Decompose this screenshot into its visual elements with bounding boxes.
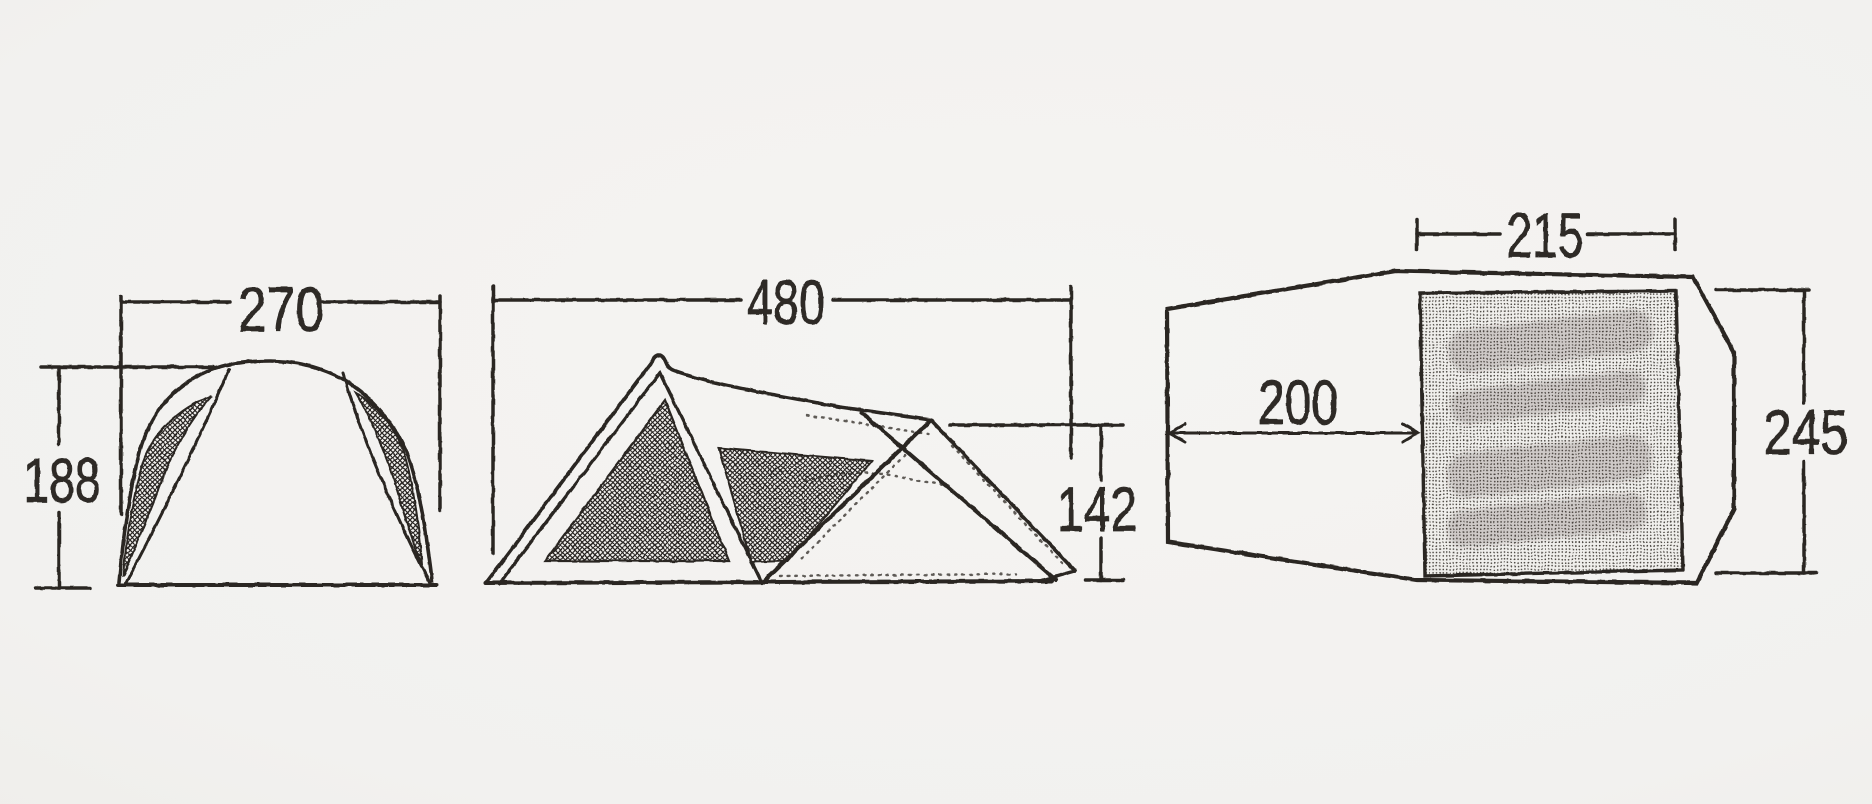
svg-text:200: 200 [1258,368,1338,438]
svg-text:142: 142 [1057,475,1137,545]
svg-text:188: 188 [24,446,101,516]
svg-text:215: 215 [1507,201,1584,271]
svg-text:270: 270 [238,275,324,345]
svg-text:245: 245 [1764,398,1849,468]
svg-text:480: 480 [747,268,825,338]
